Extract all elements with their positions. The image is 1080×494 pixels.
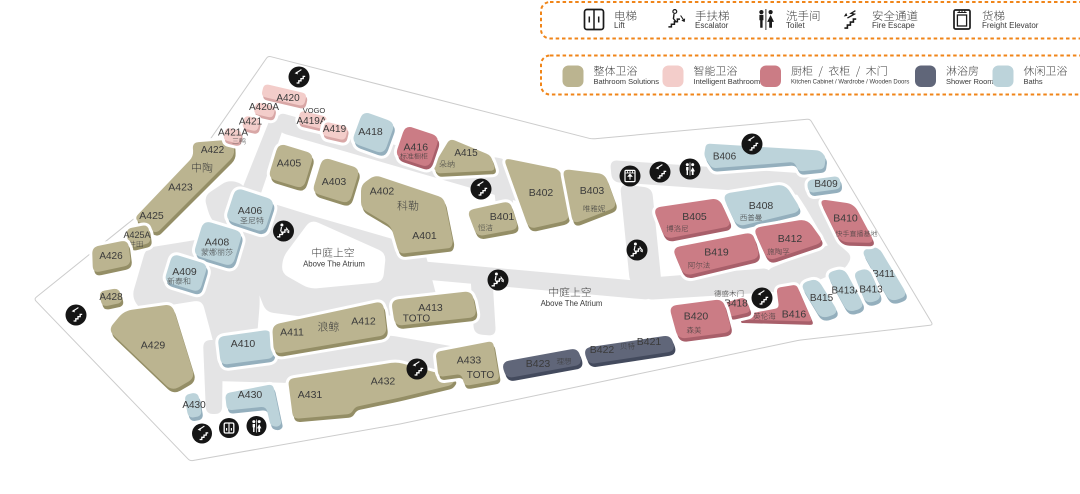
svg-text:A432: A432 [371,375,396,387]
svg-text:Baths: Baths [1024,77,1043,86]
svg-text:B410: B410 [833,212,858,224]
svg-text:A416: A416 [404,142,429,154]
svg-text:A430: A430 [182,400,206,411]
svg-text:A429: A429 [141,339,166,351]
svg-text:A409: A409 [172,266,197,278]
svg-text:Freight Elevator: Freight Elevator [982,21,1039,30]
svg-text:Escalator: Escalator [695,21,729,30]
svg-text:A405: A405 [277,157,302,169]
svg-text:B406: B406 [713,152,737,163]
svg-text:VOGO: VOGO [303,106,326,115]
svg-text:A403: A403 [322,176,347,188]
svg-text:A402: A402 [370,185,395,197]
svg-text:B413: B413 [859,285,883,296]
svg-text:B409: B409 [814,179,838,190]
svg-text:A420A: A420A [249,102,279,113]
svg-text:A431: A431 [298,389,323,401]
svg-text:A418: A418 [358,126,383,138]
svg-text:A410: A410 [231,338,256,350]
svg-text:A423: A423 [168,181,193,193]
svg-text:Above The Atrium: Above The Atrium [303,259,365,268]
svg-text:TOTO: TOTO [403,314,431,325]
svg-text:A426: A426 [99,251,123,262]
svg-text:A425A: A425A [123,230,150,240]
svg-text:A420: A420 [276,93,300,104]
svg-text:A430: A430 [238,389,263,401]
svg-text:A408: A408 [205,236,230,248]
svg-text:B423: B423 [526,358,551,370]
svg-text:A401: A401 [412,230,437,242]
svg-text:A433: A433 [457,354,482,366]
svg-text:B412: B412 [778,233,803,245]
svg-text:Kitchen Cabinet / Wardrobe / W: Kitchen Cabinet / Wardrobe / Wooden Door… [791,80,909,86]
svg-text:B402: B402 [529,187,554,199]
svg-text:B416: B416 [782,308,807,320]
svg-text:B422: B422 [590,344,615,356]
svg-text:A412: A412 [351,315,376,327]
svg-text:A413: A413 [418,302,443,314]
svg-text:A415: A415 [454,148,478,159]
svg-text:B405: B405 [682,211,707,223]
svg-text:A425: A425 [139,210,164,222]
svg-text:A422: A422 [201,145,225,156]
svg-text:Above The Atrium: Above The Atrium [541,299,603,308]
svg-text:B421: B421 [637,336,662,348]
svg-text:A421A: A421A [218,128,248,139]
svg-text:Fire Escape: Fire Escape [872,21,915,30]
svg-text:Toilet: Toilet [786,21,805,30]
svg-text:B420: B420 [684,310,709,322]
svg-text:A411: A411 [280,326,304,338]
svg-text:B401: B401 [490,211,515,223]
svg-text:Lift: Lift [614,21,625,30]
svg-text:A406: A406 [238,205,263,217]
svg-text:A419: A419 [323,124,347,135]
svg-text:TOTO: TOTO [467,370,495,381]
svg-text:B415: B415 [810,293,834,304]
svg-text:B419: B419 [704,246,729,258]
svg-text:Bathroom Solutions: Bathroom Solutions [594,77,660,86]
svg-text:B408: B408 [749,200,774,212]
svg-text:Shower Room: Shower Room [946,77,994,86]
svg-text:B403: B403 [580,185,605,197]
svg-text:Intelligent Bathroom: Intelligent Bathroom [694,77,761,86]
svg-text:A421: A421 [239,117,263,128]
svg-text:A428: A428 [99,292,123,303]
